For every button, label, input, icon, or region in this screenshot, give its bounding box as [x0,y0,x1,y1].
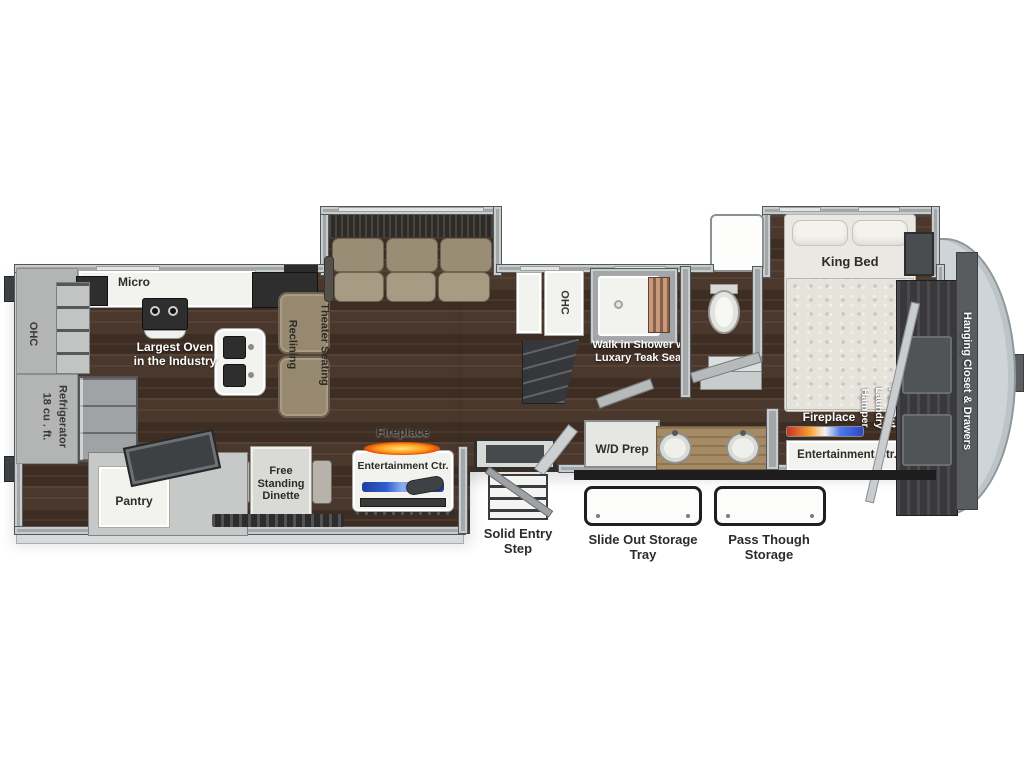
pillow-right [852,220,908,246]
closet-door-panel-bottom [902,414,952,466]
sink-bottom [223,364,246,387]
sofa-back-cushion-3 [440,238,492,272]
sofa-back-cushion-2 [386,238,438,272]
theater-seat-2 [278,356,330,418]
closet-label-band [956,252,978,510]
faucet-top [248,344,254,350]
sofa-slide-backwall [329,215,493,237]
sink-top [223,336,246,359]
floorplan-canvas: Micro OHC 18 cu . ft. Refrigerator Large… [0,0,1024,768]
sofa-seat-cushion-2 [386,272,436,302]
closet-dark [896,280,958,516]
oven-front [144,330,186,339]
window-top-dark [284,265,318,272]
tray-screw-left [596,514,600,518]
living-entctr-base [360,498,446,507]
sofa-back-cushion-1 [332,238,384,272]
bedroom-entctr-cabinet [786,440,908,472]
pass-through-door [714,486,826,526]
frame-rail [574,470,936,480]
entry-landing-inner [486,445,544,463]
shower-teak-seat [648,277,670,333]
kitchen-fridge-band [16,374,78,464]
dinette-table [250,446,312,522]
theater-seat-1 [278,292,330,354]
bath-ohc-cabinet [544,270,584,336]
wd-prep-closet [584,420,660,468]
wall-shower-wc [680,266,691,398]
vanity-faucet-left [672,430,678,436]
vanity-sink-left [658,432,692,464]
living-fireplace-glow [364,442,440,455]
vanity-faucet-right [740,430,746,436]
bath-cabinet-small [516,272,542,334]
sofa-arm-left [324,256,334,302]
vanity-sink-right [726,432,760,464]
bedroom-fireplace-strip [786,426,864,437]
ohc-shelves [56,282,90,374]
pillow-left [792,220,848,246]
entry-door-open [710,214,764,272]
bed-slide-window-left [779,207,821,212]
pass-through-label: Pass Though Storage [710,530,828,566]
slide-tray-label: Slide Out Storage Tray [572,530,714,566]
slide-tray-door [584,486,702,526]
entry-step-label: Solid Entry Step [468,524,568,560]
burner-right [168,306,178,316]
wall-entry-column [458,446,468,534]
pass-screw-right [810,514,814,518]
dinette-chair-right [312,460,332,504]
cooktop [142,298,188,330]
toilet-bowl [708,290,740,334]
sofa-seat-cushion-1 [334,272,384,302]
bedroom-wardrobe [904,232,934,276]
sofa-slide-window [338,207,484,212]
faucet-bottom [248,372,254,378]
pass-screw-left [726,514,730,518]
bed-slide-window-right [858,207,900,212]
wall-wc-bedroom [752,266,763,362]
burner-left [150,306,160,316]
shower-drain [614,300,623,309]
wall-vanity-bedroom [766,408,779,470]
tray-screw-right [686,514,690,518]
sofa-seat-cushion-3 [438,272,490,302]
floor-mat-left [212,514,344,527]
